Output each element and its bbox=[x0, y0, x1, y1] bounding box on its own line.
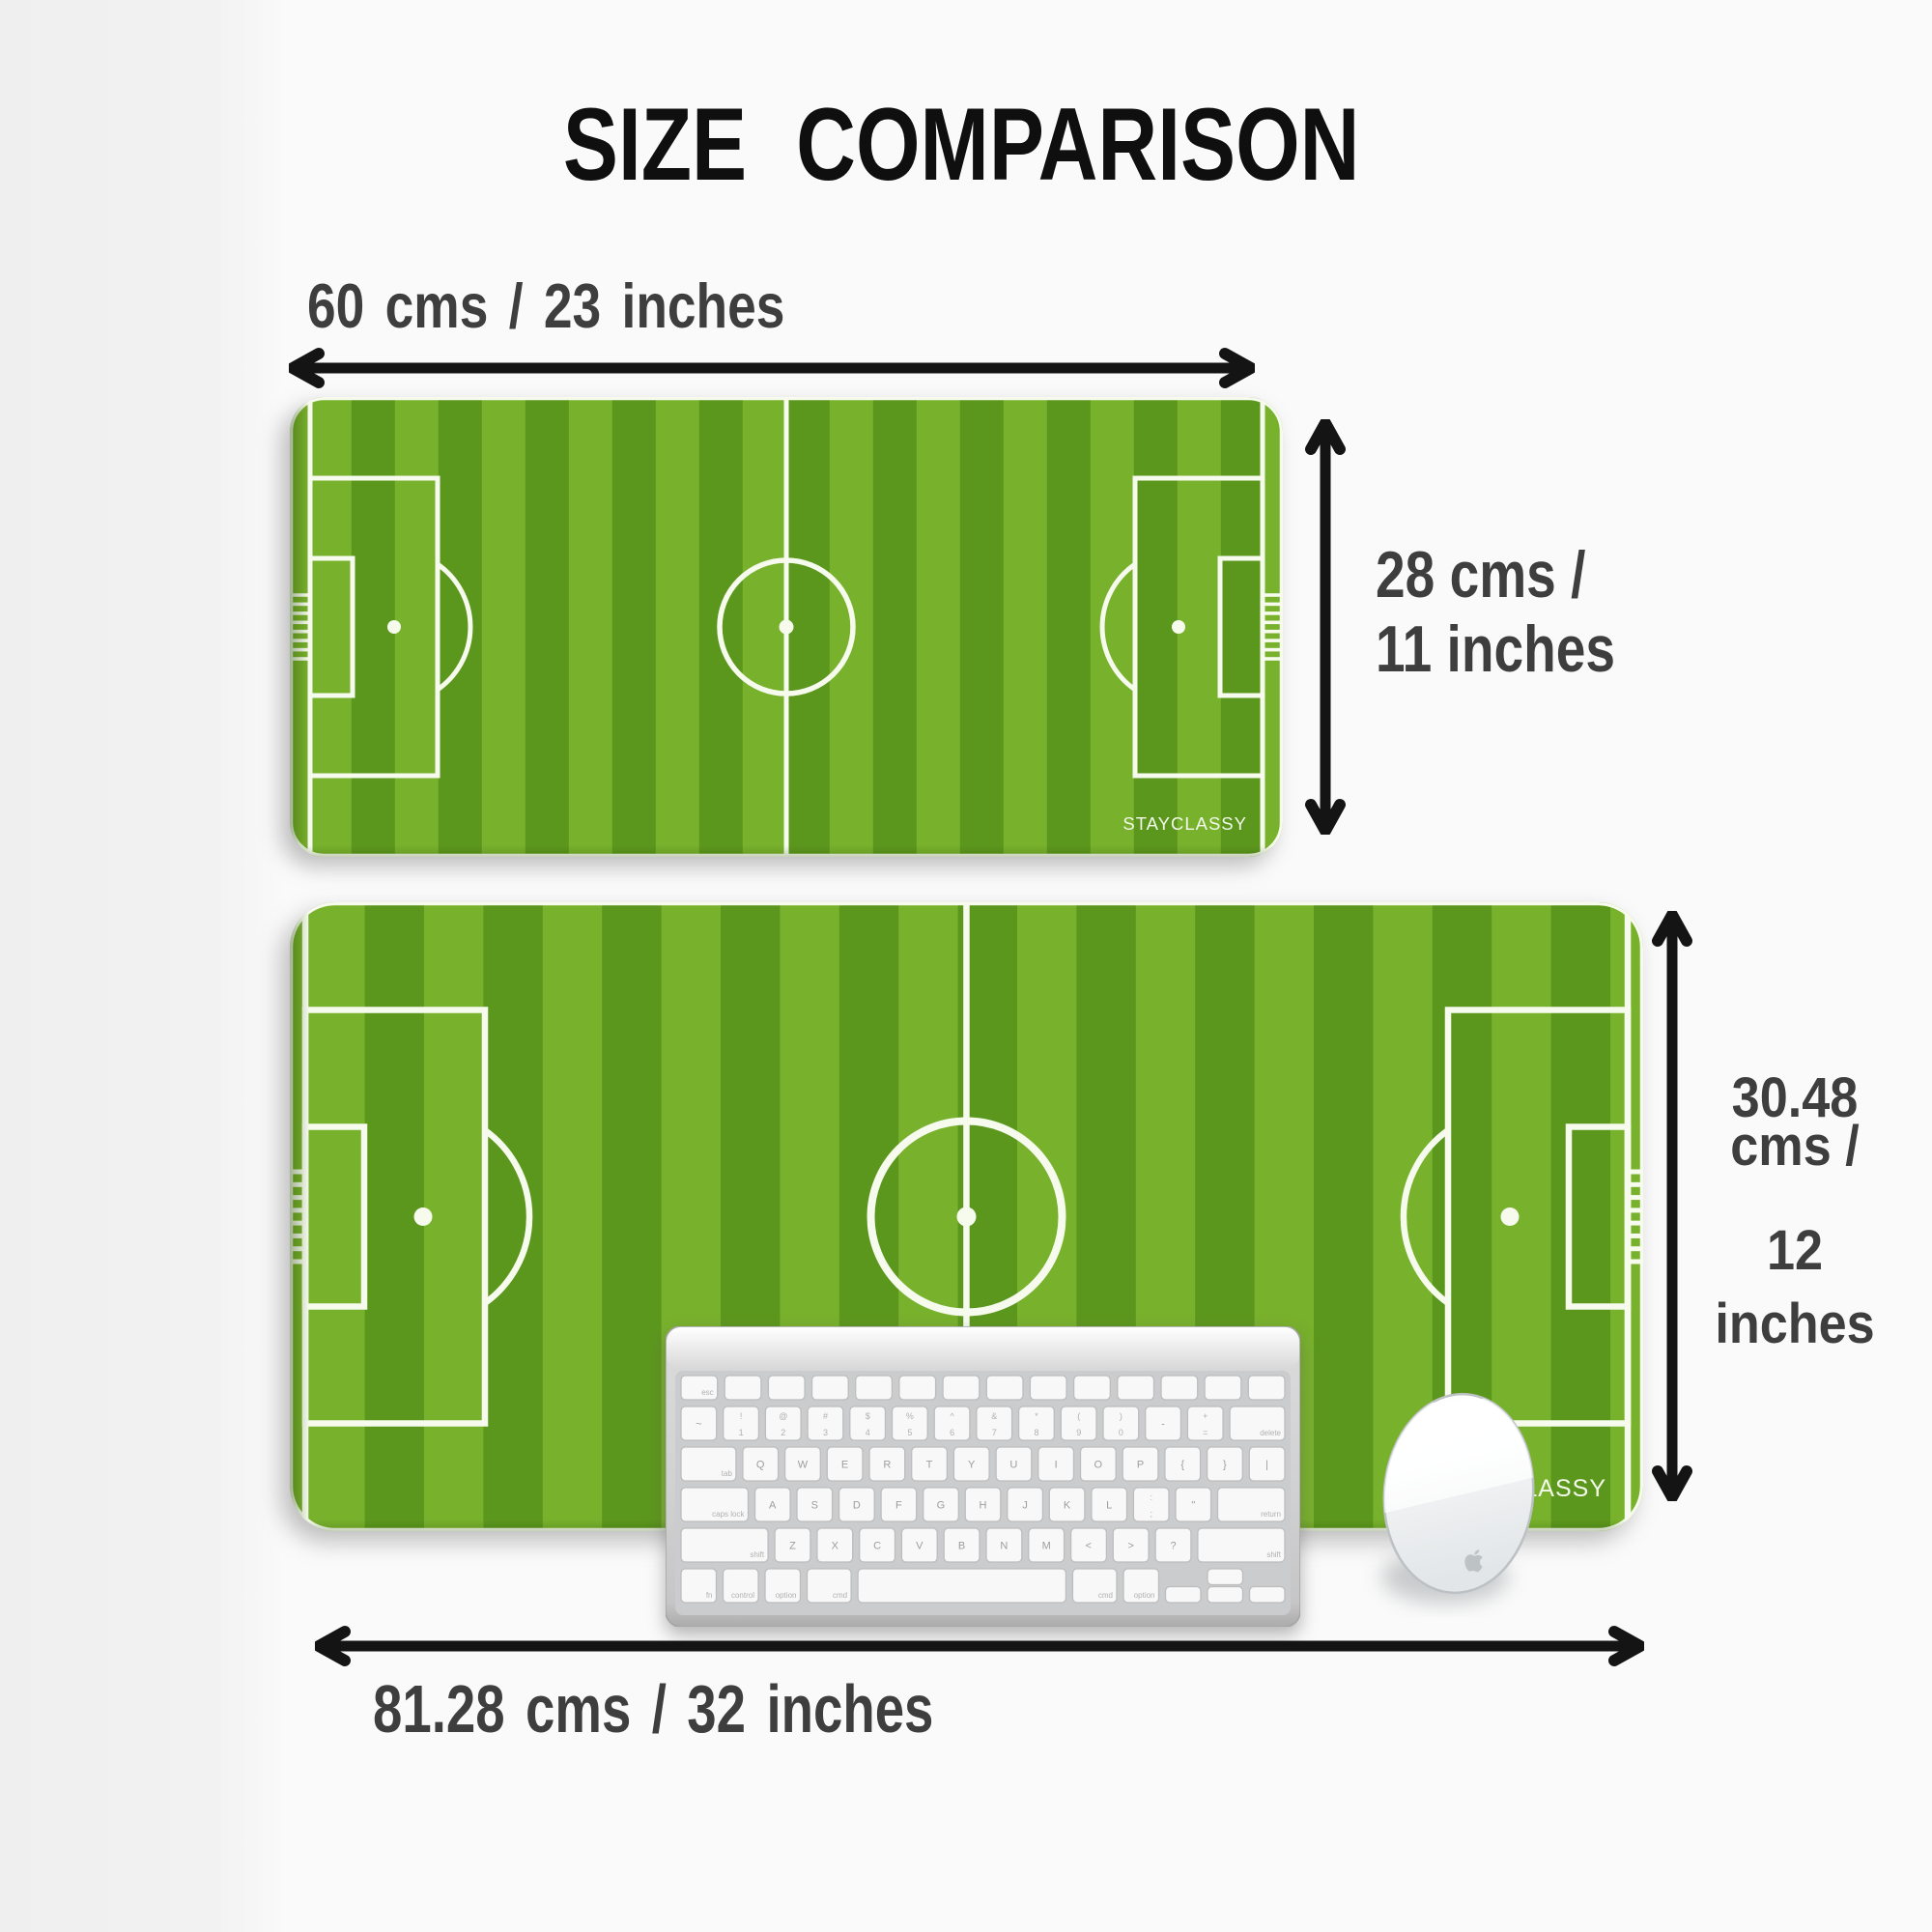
svg-text:Q: Q bbox=[756, 1460, 765, 1471]
svg-text:tab: tab bbox=[722, 1469, 733, 1478]
svg-text:~: ~ bbox=[696, 1419, 701, 1431]
svg-text:N: N bbox=[1000, 1541, 1008, 1552]
svg-text:fn: fn bbox=[706, 1591, 713, 1600]
svg-text:Y: Y bbox=[968, 1460, 976, 1471]
svg-text:L: L bbox=[1106, 1500, 1112, 1512]
svg-text:>: > bbox=[1127, 1541, 1133, 1552]
svg-text:;: ; bbox=[1150, 1509, 1152, 1519]
svg-text:X: X bbox=[832, 1541, 839, 1552]
svg-text:R: R bbox=[883, 1460, 891, 1471]
svg-text:*: * bbox=[1035, 1411, 1038, 1421]
svg-text:8: 8 bbox=[1034, 1428, 1038, 1437]
svg-text:6: 6 bbox=[950, 1428, 954, 1437]
svg-text:1: 1 bbox=[739, 1428, 744, 1437]
svg-text:A: A bbox=[769, 1500, 777, 1512]
svg-text:control: control bbox=[731, 1591, 754, 1600]
svg-text:{: { bbox=[1180, 1460, 1184, 1471]
svg-text:S: S bbox=[811, 1500, 818, 1512]
svg-text:#: # bbox=[823, 1411, 828, 1421]
svg-text:E: E bbox=[841, 1460, 848, 1471]
svg-text:=: = bbox=[1203, 1428, 1207, 1437]
svg-text:O: O bbox=[1094, 1460, 1103, 1471]
svg-text:}: } bbox=[1223, 1460, 1227, 1471]
svg-text:(: ( bbox=[1077, 1411, 1080, 1421]
svg-text:option: option bbox=[1134, 1591, 1155, 1600]
svg-text:STAYCLASSY: STAYCLASSY bbox=[1122, 813, 1247, 834]
svg-text:caps lock: caps lock bbox=[712, 1510, 745, 1519]
svg-text:option: option bbox=[776, 1591, 797, 1600]
svg-text:": " bbox=[1191, 1500, 1195, 1512]
svg-text:T: T bbox=[926, 1460, 933, 1471]
svg-text:delete: delete bbox=[1260, 1429, 1281, 1437]
svg-text:<: < bbox=[1086, 1541, 1092, 1552]
svg-text:B: B bbox=[958, 1541, 965, 1552]
svg-text:K: K bbox=[1064, 1500, 1071, 1512]
svg-text:esc: esc bbox=[701, 1388, 713, 1397]
svg-text:shift: shift bbox=[750, 1550, 764, 1559]
svg-text::: : bbox=[1150, 1492, 1152, 1502]
svg-text:F: F bbox=[895, 1500, 902, 1512]
svg-text:shift: shift bbox=[1266, 1550, 1281, 1559]
svg-text:C: C bbox=[873, 1541, 881, 1552]
svg-text:D: D bbox=[853, 1500, 861, 1512]
svg-text:V: V bbox=[916, 1541, 923, 1552]
svg-text:0: 0 bbox=[1119, 1428, 1123, 1437]
svg-text:H: H bbox=[980, 1500, 987, 1512]
svg-text:P: P bbox=[1137, 1460, 1144, 1471]
svg-text:Z: Z bbox=[789, 1541, 796, 1552]
svg-text:return: return bbox=[1261, 1510, 1281, 1519]
svg-text:5: 5 bbox=[907, 1428, 912, 1437]
svg-text:4: 4 bbox=[866, 1428, 870, 1437]
svg-text:&: & bbox=[991, 1411, 997, 1421]
svg-text:9: 9 bbox=[1076, 1428, 1081, 1437]
svg-text:W: W bbox=[798, 1460, 809, 1471]
svg-text:7: 7 bbox=[992, 1428, 997, 1437]
svg-text:G: G bbox=[937, 1500, 946, 1512]
svg-text:U: U bbox=[1009, 1460, 1017, 1471]
svg-text:cmd: cmd bbox=[1098, 1591, 1113, 1600]
svg-text:M: M bbox=[1042, 1541, 1051, 1552]
svg-text:%: % bbox=[906, 1411, 914, 1421]
svg-text:$: $ bbox=[866, 1411, 870, 1421]
svg-text:?: ? bbox=[1170, 1541, 1176, 1552]
svg-text:|: | bbox=[1265, 1460, 1268, 1471]
svg-text:I: I bbox=[1055, 1460, 1058, 1471]
svg-text:3: 3 bbox=[823, 1428, 828, 1437]
svg-text:cmd: cmd bbox=[833, 1591, 847, 1600]
svg-text:!: ! bbox=[740, 1411, 743, 1421]
svg-text:J: J bbox=[1022, 1500, 1028, 1512]
svg-text:+: + bbox=[1203, 1411, 1207, 1421]
svg-text:-: - bbox=[1161, 1419, 1165, 1431]
svg-text:): ) bbox=[1120, 1411, 1122, 1421]
svg-text:@: @ bbox=[779, 1411, 787, 1421]
svg-text:2: 2 bbox=[781, 1428, 785, 1437]
